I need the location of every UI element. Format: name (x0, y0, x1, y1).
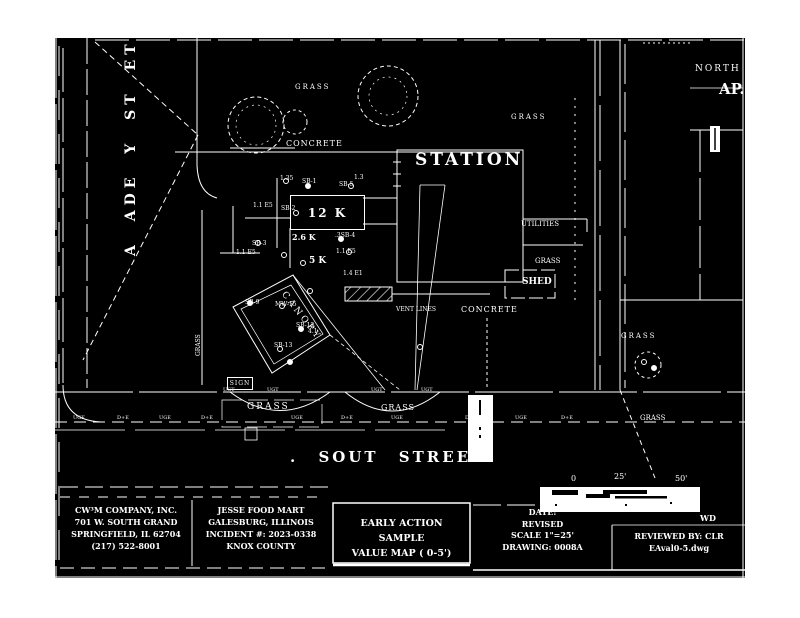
scalebar-tick-25: 25' (614, 472, 626, 481)
utility-tag: UGE (391, 415, 403, 421)
grass-label-e: GRASS (535, 257, 560, 265)
vent-line (415, 185, 420, 390)
scalebar-leader (620, 390, 655, 478)
south-street-label: . SOUT STREET (290, 448, 485, 466)
vent-line (417, 185, 445, 390)
review-block: REVIEWED BY: CLR EAval0-5.dwg (615, 530, 743, 554)
boring-label-sb13: SB-13 (274, 342, 292, 349)
company-name: CW³M COMPANY, INC. (63, 504, 189, 516)
grass-label-ne: GRASS (511, 113, 546, 121)
whiteout-box (468, 395, 493, 462)
county: KNOX COUNTY (195, 540, 327, 552)
scanned-site-plan-page: NORTH AP. A ADE Y ST ET . SOUT STREET GR… (0, 0, 800, 618)
utility-tag: UGE (159, 415, 171, 421)
utility-tag: D+E (117, 415, 129, 421)
building-lines (175, 148, 587, 390)
utility-tag: D+E (561, 415, 573, 421)
company-address: 701 W. SOUTH GRAND (63, 516, 189, 528)
pump-value: 5 K (309, 256, 326, 266)
scalebar-tick-0: 0 (571, 474, 576, 483)
boring-label-sb1: SB-1 (302, 178, 316, 185)
drawing-number: DRAWING: 0008A (480, 542, 605, 554)
north-arrow-icon (710, 126, 720, 152)
grass-label-west-vertical: GRASS (195, 334, 202, 356)
island-value: 2.6 K (292, 232, 316, 242)
tree-icon (283, 110, 307, 134)
sample-value: 1.3 (354, 174, 364, 181)
site-city: GALESBURG, ILLINOIS (195, 516, 327, 528)
utilities-label: UTILITIES (521, 220, 559, 228)
boring-label-sb3: SB-3 (252, 240, 266, 247)
map-corner-fragment: AP. (719, 80, 745, 98)
tree-icon (358, 66, 418, 126)
sample-value: 1.35 (280, 175, 293, 182)
hatched-pad (345, 287, 392, 301)
utility-tag: UGT (267, 387, 279, 393)
grass-label-se: GRASS (640, 414, 665, 422)
scale-field: SCALE 1"=25' (480, 530, 605, 542)
boring-label-sb5: SB-5 (339, 181, 353, 188)
utility-tag: D+E (201, 415, 213, 421)
sample-value: 1.1 E5 (336, 248, 356, 255)
utility-tag: UGE (291, 415, 303, 421)
utility-tag: UGE (515, 415, 527, 421)
north-label: NORTH (695, 64, 741, 74)
utility-tag: UGT (223, 387, 235, 393)
site-name: JESSE FOOD MART (195, 504, 327, 516)
company-city: SPRINGFIELD, IL 62704 (63, 528, 189, 540)
company-block: CW³M COMPANY, INC. 701 W. SOUTH GRAND SP… (63, 504, 189, 552)
sample-value: 1.1 E5 (253, 202, 273, 209)
sample-value: 1.4 E1 (343, 270, 363, 277)
grass-label-right: GRASS (621, 332, 656, 340)
site-block: JESSE FOOD MART GALESBURG, ILLINOIS INCI… (195, 504, 327, 552)
sample-value: 1.1 E5 (236, 249, 256, 256)
map-title-line1: EARLY ACTION SAMPLE (336, 516, 467, 546)
detail-lines (415, 40, 743, 478)
vent-lines-label: VENT LINES (396, 306, 436, 313)
station-label: STATION (415, 150, 523, 170)
kiosk-value-box: 12 K (290, 195, 365, 230)
info-block: DATE: REVISED SCALE 1"=25' DRAWING: 0008… (480, 507, 605, 553)
reviewed-by: REVIEWED BY: CLR (615, 530, 743, 542)
boring-label-sb4: .3SB-4 (335, 232, 355, 239)
date-field: DATE: (480, 507, 605, 519)
utility-tag: UGE (73, 415, 85, 421)
revised-field: REVISED (480, 519, 605, 531)
plan-sheet: NORTH AP. A ADE Y ST ET . SOUT STREET GR… (55, 38, 745, 578)
company-phone: (217) 522-8001 (63, 540, 189, 552)
utility-tag: D+E (341, 415, 353, 421)
drawing-file: EAval0-5.dwg (615, 542, 743, 554)
scalebar-tick-50: 50' (675, 474, 687, 483)
grass-label-nw: GRASS (295, 83, 330, 91)
boring-label-sb2: SB-2 (281, 205, 295, 212)
property-line-ne (95, 42, 198, 135)
incident-number: INCIDENT #: 2023-0338 (195, 528, 327, 540)
tree-icon (635, 352, 661, 378)
map-title-line2: VALUE MAP ( 0-5') (336, 546, 467, 561)
property-line-sw (83, 135, 198, 360)
map-title-block: EARLY ACTION SAMPLE VALUE MAP ( 0-5') (336, 516, 467, 561)
concrete-label-s: CONCRETE (461, 305, 518, 314)
utility-tag: UGT (421, 387, 433, 393)
well-label-mw15: MW-15 (275, 301, 297, 308)
academy-street-label: A ADE Y ST ET (123, 39, 139, 256)
grass-label-s: GRASS (381, 403, 415, 412)
grass-label-sw: GRASS (247, 402, 290, 412)
boring-label-sb9: SB-9 (245, 299, 259, 306)
concrete-label-nw: CONCRETE (286, 139, 343, 148)
academy-street-lines (63, 38, 217, 422)
tree-icon (228, 97, 284, 153)
sample-value: 4.1 (308, 328, 318, 335)
utility-tag: UGT (371, 387, 383, 393)
shed-label: SHED (522, 277, 552, 287)
drawn-by-fragment: WD (700, 513, 716, 523)
